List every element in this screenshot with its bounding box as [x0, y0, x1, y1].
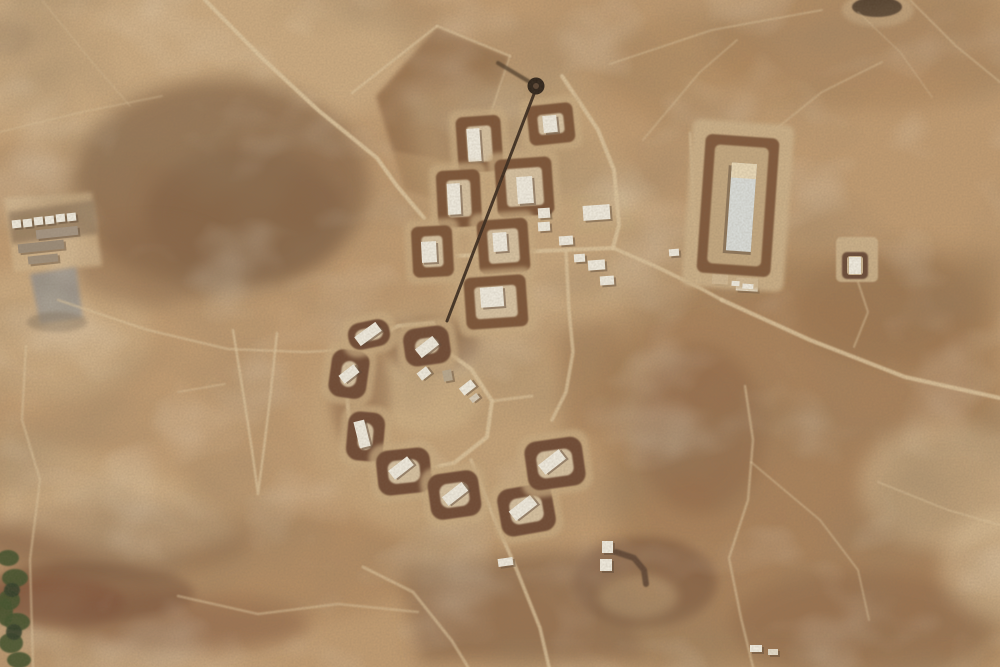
satellite-image-viewport	[0, 0, 1000, 667]
render-root	[0, 0, 1000, 667]
film-grain	[0, 0, 1000, 667]
satellite-scene	[0, 0, 1000, 667]
